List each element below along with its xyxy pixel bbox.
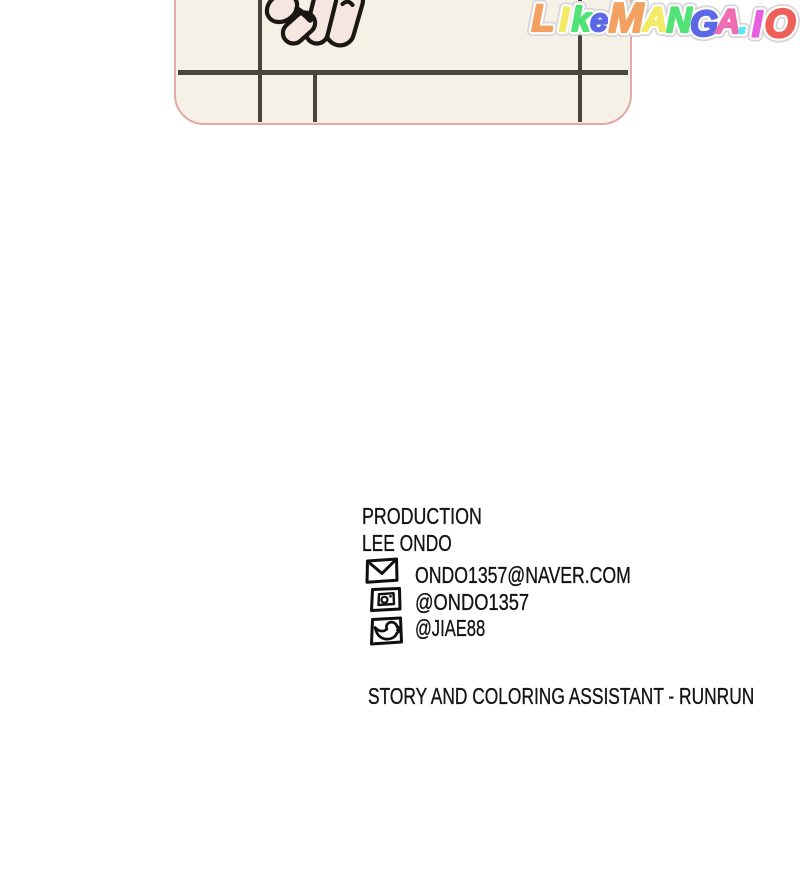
- svg-text:G: G: [690, 3, 718, 44]
- svg-text:e: e: [590, 2, 608, 38]
- svg-text:O: O: [764, 2, 795, 46]
- svg-text:L: L: [531, 0, 554, 40]
- svg-text:A: A: [642, 1, 668, 39]
- svg-text:I: I: [752, 4, 763, 45]
- svg-text:M: M: [609, 0, 645, 41]
- svg-text:N: N: [666, 1, 692, 40]
- svg-text:I: I: [559, 1, 570, 39]
- svg-text:.: .: [738, 3, 747, 41]
- svg-text:A: A: [715, 3, 741, 41]
